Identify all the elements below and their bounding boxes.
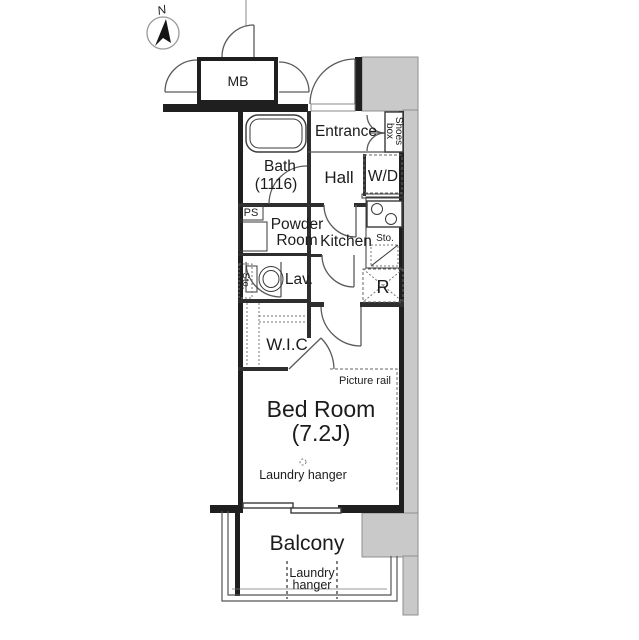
label-kitchen-sto: Sto. (376, 233, 394, 244)
label-entrance: Entrance (315, 123, 377, 140)
floor-plan: N (0, 0, 639, 640)
bedroom-door-arc (321, 307, 361, 346)
window-panel-left (243, 503, 293, 508)
laundry-hook-icon (300, 459, 306, 465)
label-powder-2: Room (276, 232, 317, 249)
label-mb: MB (228, 73, 249, 89)
entrance-door-arc (310, 59, 355, 104)
window-panel-right (291, 508, 341, 513)
gray-block-top-right (362, 57, 418, 111)
wall-bottom-left-stub (210, 505, 243, 513)
wic-door-arc (321, 338, 334, 369)
north-label: N (156, 2, 168, 18)
floor-plan-page: N (0, 0, 639, 640)
wall-bottom-right (338, 505, 404, 513)
gray-strip-bottom-right (403, 556, 418, 615)
label-bedroom: Bed Room (267, 396, 376, 422)
label-bath: Bath (264, 158, 296, 175)
wall-kitchen-lower-stub (308, 254, 322, 257)
wall-entrance-right (355, 57, 362, 111)
label-bedroom-size: (7.2J) (292, 420, 351, 446)
unit-entrance-door (310, 59, 355, 111)
gray-block-balcony-right (362, 513, 418, 557)
wall-left (238, 104, 243, 513)
label-shoes-box-2: box (384, 123, 395, 139)
north-indicator: N (147, 2, 179, 49)
wall-powder-lav (238, 253, 311, 256)
wall-bedroom-top-right (360, 302, 404, 307)
gray-strip-right (403, 110, 418, 514)
wall-right (399, 111, 404, 513)
mb-top-door-arc (222, 25, 254, 57)
label-bedroom-laundry: Laundry hanger (259, 468, 347, 482)
label-balcony-laundry-2: hanger (293, 578, 332, 592)
label-hall: Hall (324, 168, 353, 187)
label-lav-sto: Sto. (240, 273, 251, 290)
label-bath-size: (1116) (255, 176, 298, 193)
powder-cabinet-box (239, 222, 267, 251)
corridor-door-arc (322, 255, 354, 287)
wall-lav-wic (238, 299, 311, 303)
balcony-window (243, 503, 341, 513)
toilet-seat-icon (263, 271, 279, 288)
label-kitchen: Kitchen (320, 233, 372, 250)
wall-bath-hall (307, 111, 311, 205)
label-wd: W/D (368, 168, 398, 185)
label-ps: PS (244, 207, 259, 219)
north-arrow-icon (155, 19, 171, 46)
label-picture-rail: Picture rail (339, 375, 391, 387)
mb-right-door-arc (279, 62, 309, 92)
entrance-threshold (311, 104, 355, 111)
label-powder-1: Powder (271, 216, 324, 233)
wall-wic-bottom (238, 367, 288, 371)
meter-box (165, 25, 309, 102)
wall-top (163, 104, 308, 112)
bathtub-icon (246, 115, 306, 152)
kitchen-storage-diagonal (371, 245, 398, 266)
wall-wic-right (307, 302, 311, 338)
wall-balcony-left (235, 513, 240, 596)
label-lav: Lav. (285, 271, 313, 288)
mb-left-door-arc (165, 60, 197, 92)
stove-icon (367, 201, 402, 227)
label-refrigerator: R (377, 277, 390, 297)
label-wic: W.I.C (266, 335, 308, 354)
label-balcony: Balcony (270, 532, 345, 555)
